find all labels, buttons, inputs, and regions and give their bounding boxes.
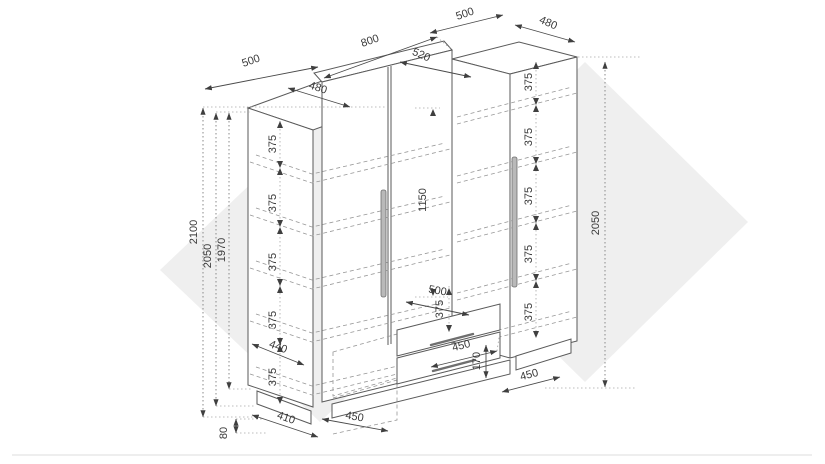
label-shelf-gap-left-2: 375	[267, 194, 279, 212]
label-shelf-gap-left-3: 375	[267, 253, 279, 271]
right-cabinet-front-face	[510, 57, 577, 358]
label-height-right-cabinet: 2050	[590, 211, 602, 235]
label-height-total: 2100	[188, 220, 200, 244]
label-shelf-gap-middle: 375	[434, 300, 446, 318]
label-shelf-gap-right-3: 375	[523, 187, 535, 205]
dim-500-left	[205, 67, 318, 89]
label-shelf-gap-right-4: 375	[523, 245, 535, 263]
door-handle-middle	[381, 190, 386, 297]
label-drawer-height: 170	[471, 352, 483, 370]
label-height-left-cabinet: 2050	[202, 244, 214, 268]
label-shelf-gap-right-1: 375	[523, 73, 535, 91]
label-shelf-gap-right-5: 375	[523, 303, 535, 321]
label-shelf-gap-left-4: 375	[267, 311, 279, 329]
label-base-width-right: 450	[519, 367, 540, 383]
door-handle-right	[512, 157, 517, 287]
label-shelf-gap-left-5: 375	[267, 368, 279, 386]
label-depth-right: 480	[537, 14, 559, 32]
label-height-left-interior: 1970	[216, 238, 228, 262]
label-width-left: 500	[240, 53, 261, 70]
label-width-middle: 800	[359, 33, 380, 50]
label-plinth-height-80: 80	[218, 427, 230, 439]
label-middle-door-height: 1150	[417, 188, 429, 212]
left-cabinet-side-face	[248, 108, 313, 407]
label-width-right: 500	[454, 6, 475, 23]
label-base-width-middle: 450	[344, 410, 364, 425]
label-shelf-gap-left-1: 375	[267, 135, 279, 153]
wardrobe-technical-drawing: 500 800 500 480 520 480 2100 2050 1970 2…	[0, 0, 825, 464]
drawing-canvas: 500 800 500 480 520 480 2100 2050 1970 2…	[0, 0, 825, 464]
label-shelf-gap-right-2: 375	[523, 128, 535, 146]
